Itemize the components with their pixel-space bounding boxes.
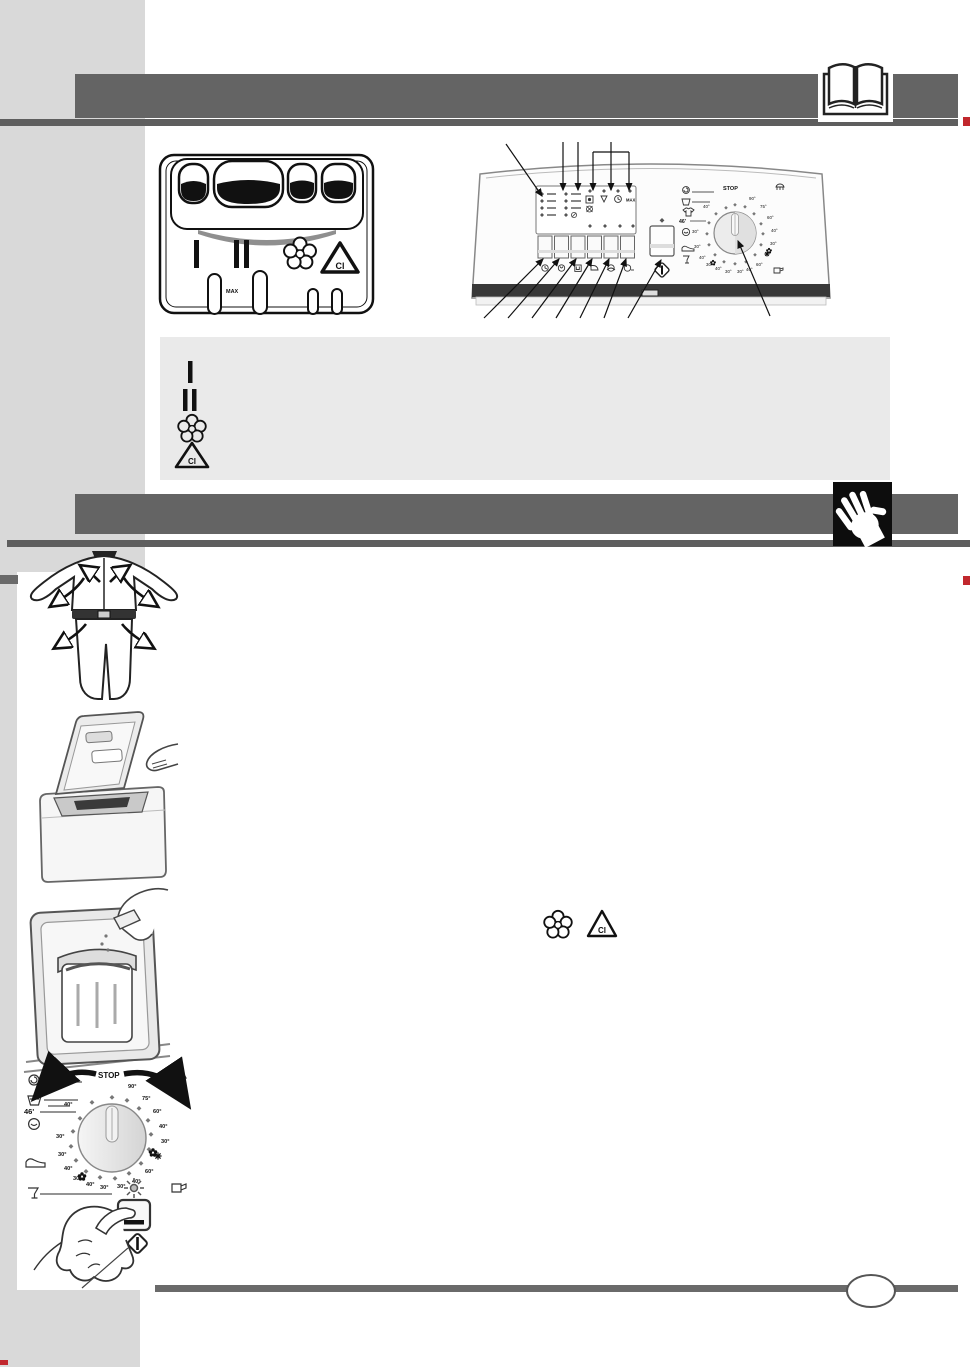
quick-program-label: 46': [679, 219, 686, 225]
red-tick-mid: [963, 576, 970, 585]
basket-icon-big: [172, 1073, 186, 1082]
legend-box: Cl: [160, 337, 890, 480]
svg-text:30°: 30°: [58, 1152, 66, 1158]
legend-symbol-I: [188, 361, 193, 383]
section1-rule: [0, 119, 958, 126]
svg-text:30°: 30°: [56, 1134, 64, 1140]
svg-text:Cl: Cl: [598, 926, 606, 935]
dial-stop-label-big: STOP: [98, 1071, 120, 1080]
stop-hand-icon: [833, 482, 892, 546]
symbol-I-bar: [194, 240, 199, 268]
footer-rule: [155, 1285, 958, 1292]
svg-text:30°: 30°: [770, 241, 777, 246]
legend-bleach-cl-icon: Cl: [176, 443, 208, 467]
sneaker-icon-big: [26, 1159, 45, 1167]
svg-text:40°: 40°: [771, 228, 778, 233]
max-led-label: MAX: [626, 198, 636, 203]
svg-text:40°: 40°: [64, 1102, 72, 1108]
manual-page: I Cl MAX: [0, 0, 970, 1367]
legend-symbols: Cl: [168, 359, 216, 471]
svg-text:60°: 60°: [153, 1109, 161, 1115]
sidebar-strip: [0, 572, 17, 1292]
cotton-spiral-icon-big: [29, 1075, 39, 1085]
svg-text:90°: 90°: [128, 1084, 136, 1090]
tub-icon-big: [28, 1096, 41, 1105]
section2-header-bar: [75, 494, 958, 534]
figure-dispenser-drawer: I Cl MAX: [158, 150, 375, 315]
svg-text:90°: 90°: [749, 196, 756, 201]
symbol-II-bar2: [244, 240, 249, 268]
sidebar-bottom: [0, 1290, 140, 1367]
svg-text:60°: 60°: [767, 215, 774, 220]
svg-text:75°: 75°: [142, 1096, 150, 1102]
svg-text:30°: 30°: [737, 269, 744, 274]
symbol-II-bar1: [234, 240, 239, 268]
legend-symbol-II: [183, 389, 197, 411]
svg-text:40°: 40°: [159, 1124, 167, 1130]
svg-text:30°: 30°: [725, 269, 732, 274]
red-tick-top: [963, 117, 970, 126]
figure-pour-detergent: [18, 884, 183, 1076]
svg-text:75°: 75°: [760, 204, 767, 209]
max-label: MAX: [226, 289, 239, 295]
open-book-icon: [818, 58, 893, 122]
start-button: [650, 226, 674, 256]
section2-rule: [7, 540, 970, 547]
svg-text:40°: 40°: [703, 204, 710, 209]
figure-control-panel: MAX: [470, 140, 832, 320]
hand-icon-box: [833, 482, 892, 546]
dial-stop-label: STOP: [723, 186, 738, 192]
svg-text:40°: 40°: [699, 255, 706, 260]
figure-press-start-button: [30, 1172, 185, 1290]
svg-text:30°: 30°: [694, 244, 701, 249]
book-icon-box: [818, 58, 893, 122]
inline-bleach-cl-icon: Cl: [584, 906, 620, 940]
blinking-led-icon: [124, 1178, 144, 1198]
svg-text:Cl: Cl: [188, 457, 196, 466]
svg-text:60°: 60°: [756, 262, 763, 267]
inline-softener-flower-icon: [541, 908, 575, 942]
handwash-icon-big: [29, 1119, 40, 1130]
legend-softener-flower-icon: [178, 415, 206, 442]
page-number-oval: [846, 1274, 896, 1308]
svg-text:Cl: Cl: [336, 261, 345, 271]
svg-text:30°: 30°: [692, 229, 699, 234]
red-tick-bottom: [0, 1360, 8, 1365]
svg-text:40°: 40°: [715, 266, 722, 271]
section-tab: [0, 575, 18, 584]
svg-text:30°: 30°: [161, 1139, 169, 1145]
quick-program-label-big: 46': [24, 1107, 34, 1116]
figure-check-pockets-garment: [22, 548, 187, 703]
figure-open-lid-load: [20, 706, 180, 884]
